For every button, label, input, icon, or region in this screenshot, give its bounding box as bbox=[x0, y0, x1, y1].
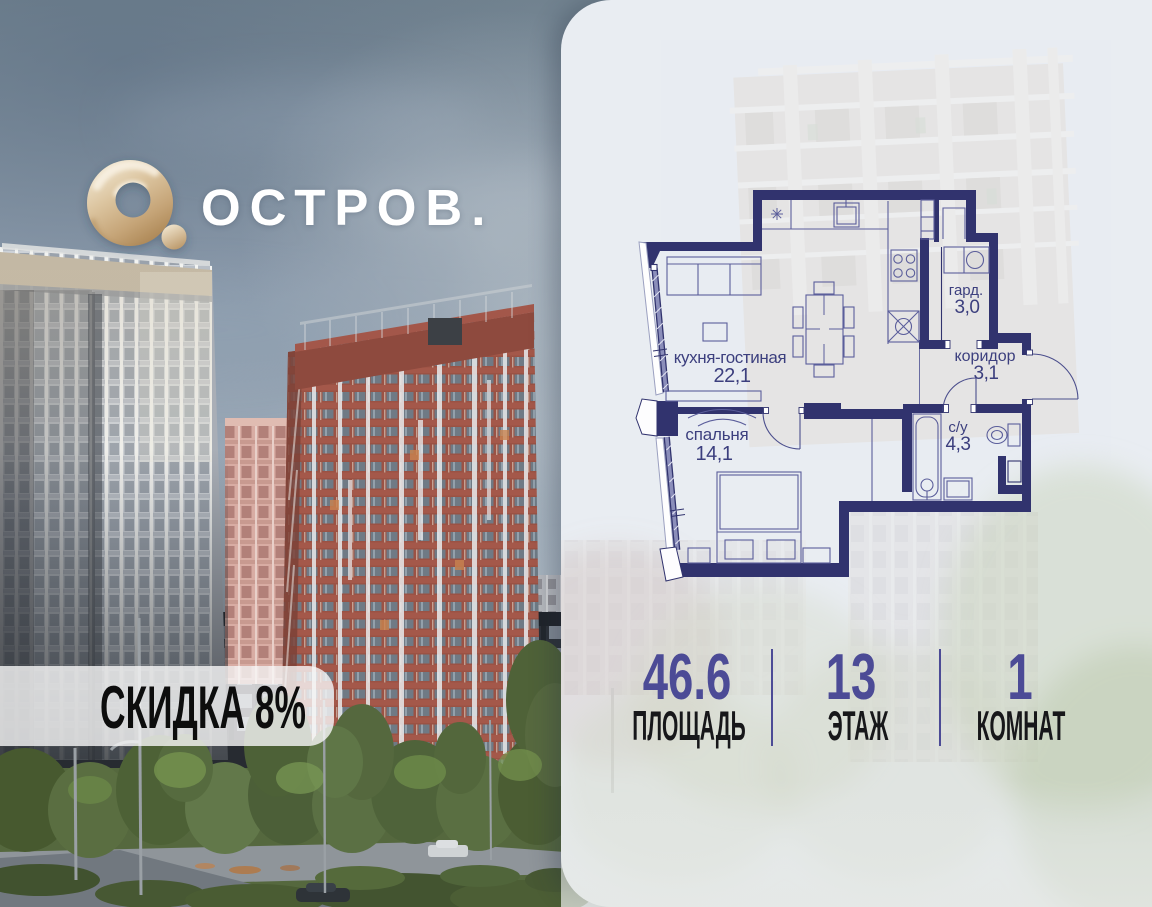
svg-text:4,3: 4,3 bbox=[946, 434, 971, 455]
svg-text:22,1: 22,1 bbox=[714, 365, 751, 387]
svg-text:спальня: спальня bbox=[685, 425, 748, 444]
svg-text:3,1: 3,1 bbox=[974, 363, 999, 384]
svg-text:3,0: 3,0 bbox=[955, 297, 980, 318]
svg-text:14,1: 14,1 bbox=[696, 443, 733, 465]
